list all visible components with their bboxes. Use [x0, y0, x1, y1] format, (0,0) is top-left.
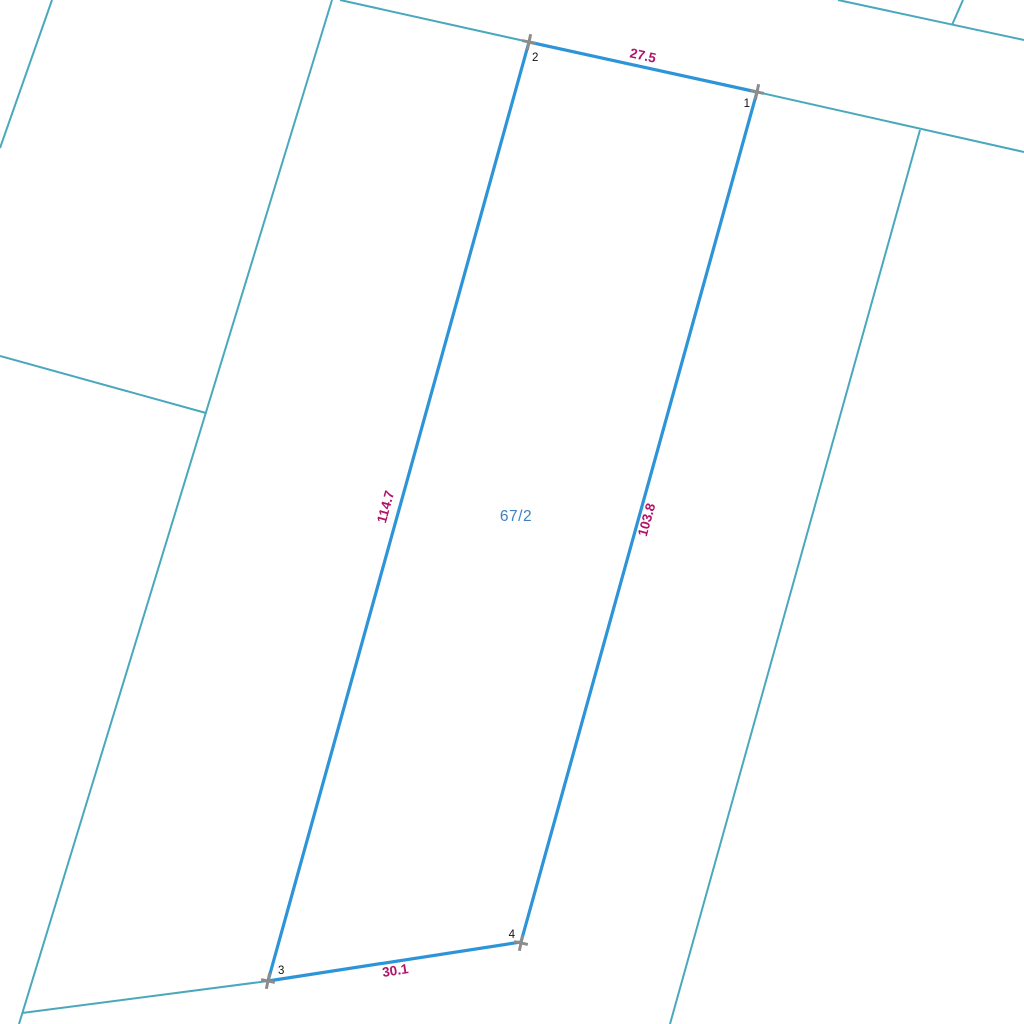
neighbor-boundary-line [838, 0, 1024, 40]
map-canvas[interactable]: 1 2 3 4 27.5 114.7 30.1 103.8 67/2 [0, 0, 1024, 1024]
vertex-number-4: 4 [509, 929, 516, 941]
edge-length-label-4-1: 103.8 [635, 501, 659, 538]
neighbor-boundary-line [0, 0, 52, 148]
neighbor-boundary-line [340, 0, 529, 42]
neighbor-boundary-line [952, 0, 963, 25]
neighbor-boundary-line [0, 356, 206, 413]
neighbor-boundary-line [670, 130, 920, 1024]
vertex-marker-2[interactable] [520, 33, 537, 52]
edge-length-label-2-3: 114.7 [374, 489, 397, 525]
vertex-marker-4[interactable] [512, 934, 529, 953]
vertex-number-2: 2 [532, 52, 538, 64]
vertex-number-1: 1 [744, 98, 750, 110]
parcel-number-label[interactable]: 67/2 [500, 508, 532, 525]
map-viewport: 1 2 3 4 27.5 114.7 30.1 103.8 67/2 [0, 0, 1024, 1024]
vertex-marker-3[interactable] [259, 972, 276, 991]
vertex-marker-1[interactable] [748, 83, 765, 102]
neighbor-boundary-line [22, 981, 268, 1013]
edge-length-label-2-1: 27.5 [629, 45, 658, 65]
vertex-number-3: 3 [278, 965, 284, 977]
edge-length-label-3-4: 30.1 [381, 961, 410, 980]
neighbor-boundary-line [757, 92, 1024, 152]
neighbor-boundary-line [19, 0, 332, 1024]
